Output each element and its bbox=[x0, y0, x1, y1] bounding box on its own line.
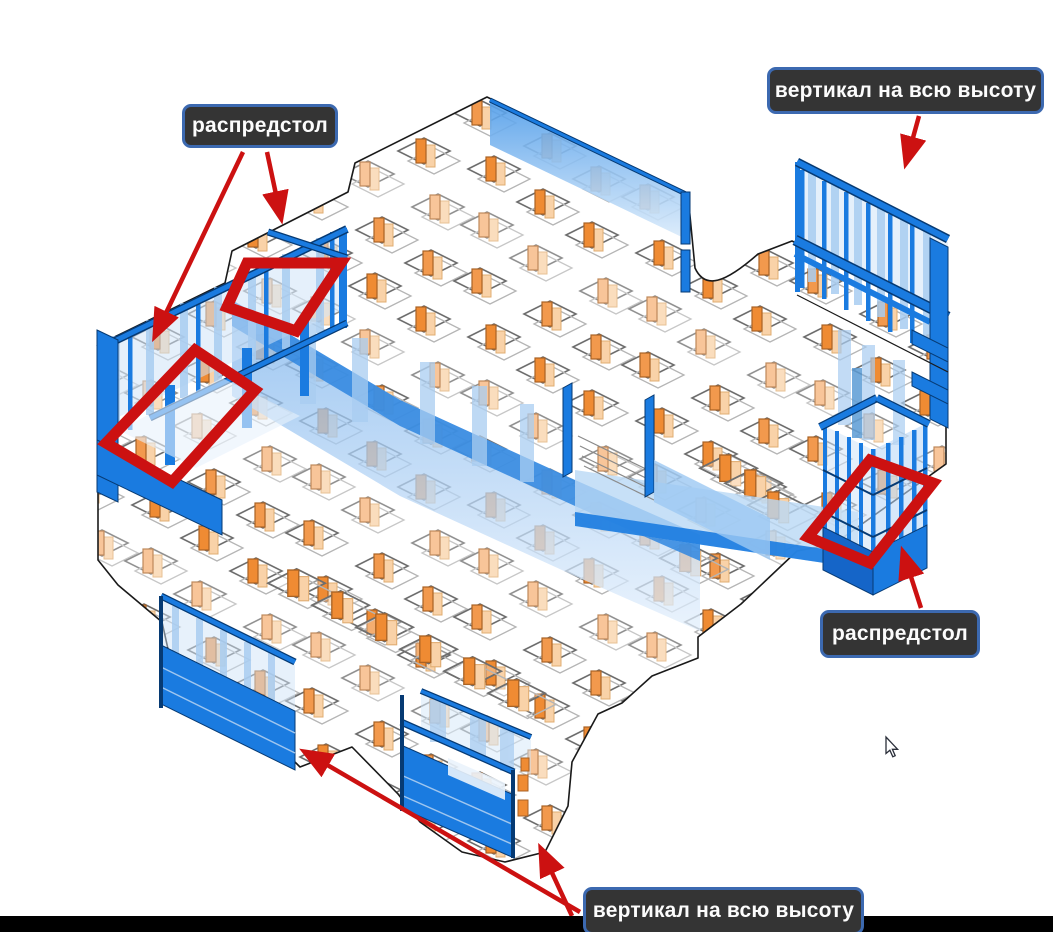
bottom-black-bar bbox=[0, 916, 1053, 932]
column bbox=[6, 497, 68, 533]
column bbox=[1028, 385, 1053, 421]
callout-raspredstol-right: распредстол bbox=[820, 610, 980, 658]
column bbox=[20, 385, 82, 421]
column bbox=[0, 408, 26, 444]
column bbox=[965, 464, 1027, 500]
column bbox=[13, 609, 75, 645]
callout-text: распредстол bbox=[832, 622, 968, 646]
column bbox=[972, 576, 1034, 612]
arrow-left-label-to-upper-box bbox=[267, 152, 281, 218]
column bbox=[0, 352, 12, 388]
column bbox=[580, 782, 642, 818]
column bbox=[958, 352, 1020, 388]
3d-model-viewport[interactable] bbox=[0, 0, 1053, 932]
column bbox=[0, 464, 19, 500]
callout-vertical-bottom: вертикал на всю высоту bbox=[583, 887, 864, 932]
callout-vertical-top: вертикал на всю высоту bbox=[767, 67, 1044, 114]
screenshot-stage: распредстол вертикал на всю высоту распр… bbox=[0, 0, 1053, 932]
column bbox=[734, 642, 796, 678]
column bbox=[20, 553, 82, 589]
callout-text: распредстол bbox=[192, 114, 328, 138]
mouse-cursor bbox=[886, 737, 898, 757]
arrow-bottom-label-to-s-structure bbox=[541, 849, 572, 916]
column bbox=[0, 520, 12, 556]
column bbox=[6, 329, 68, 365]
column bbox=[692, 217, 754, 253]
callout-text: вертикал на всю высоту bbox=[593, 899, 854, 923]
callout-text: вертикал на всю высоту bbox=[775, 79, 1036, 103]
column bbox=[972, 408, 1034, 444]
column bbox=[636, 744, 698, 780]
callout-raspredstol-left: распредстол bbox=[182, 104, 338, 148]
column bbox=[1028, 553, 1053, 589]
column bbox=[62, 642, 124, 678]
column bbox=[748, 698, 810, 734]
arrow-top-label-to-ne-structure bbox=[906, 116, 919, 163]
column bbox=[804, 660, 866, 696]
column bbox=[69, 586, 131, 622]
column bbox=[0, 576, 26, 612]
column bbox=[1014, 497, 1053, 533]
column bbox=[692, 721, 754, 757]
column bbox=[1021, 441, 1053, 477]
column bbox=[13, 441, 75, 477]
column bbox=[678, 665, 740, 701]
column bbox=[958, 520, 1020, 556]
